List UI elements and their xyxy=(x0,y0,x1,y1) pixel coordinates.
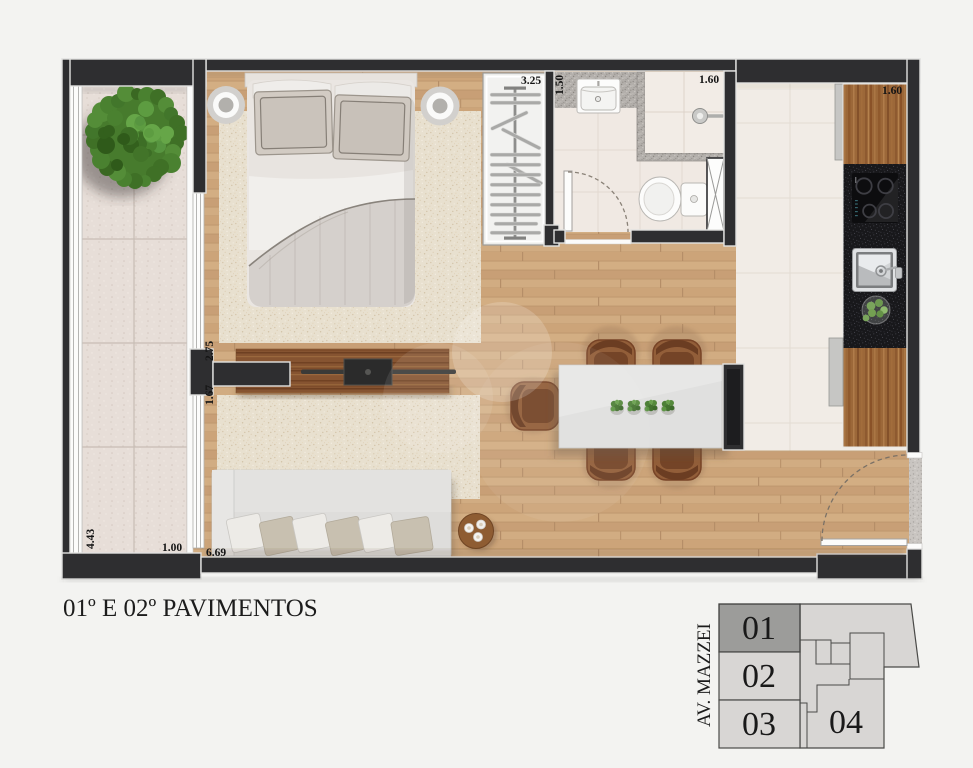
svg-text:2.75: 2.75 xyxy=(204,341,216,361)
svg-text:AV. MAZZEI: AV. MAZZEI xyxy=(694,623,715,727)
svg-text:01: 01 xyxy=(742,610,776,647)
svg-text:1.50: 1.50 xyxy=(554,75,566,95)
svg-text:01º E 02º PAVIMENTOS: 01º E 02º PAVIMENTOS xyxy=(63,595,318,622)
svg-text:02: 02 xyxy=(742,658,776,695)
svg-text:03: 03 xyxy=(742,706,776,743)
svg-text:1.67: 1.67 xyxy=(204,385,216,405)
svg-text:1.60: 1.60 xyxy=(699,74,719,86)
svg-text:3.25: 3.25 xyxy=(521,75,541,87)
svg-text:1.60: 1.60 xyxy=(882,85,902,97)
svg-text:1.00: 1.00 xyxy=(162,542,182,554)
svg-text:6.69: 6.69 xyxy=(206,547,226,559)
svg-text:04: 04 xyxy=(829,704,863,741)
svg-text:4.43: 4.43 xyxy=(85,529,97,549)
